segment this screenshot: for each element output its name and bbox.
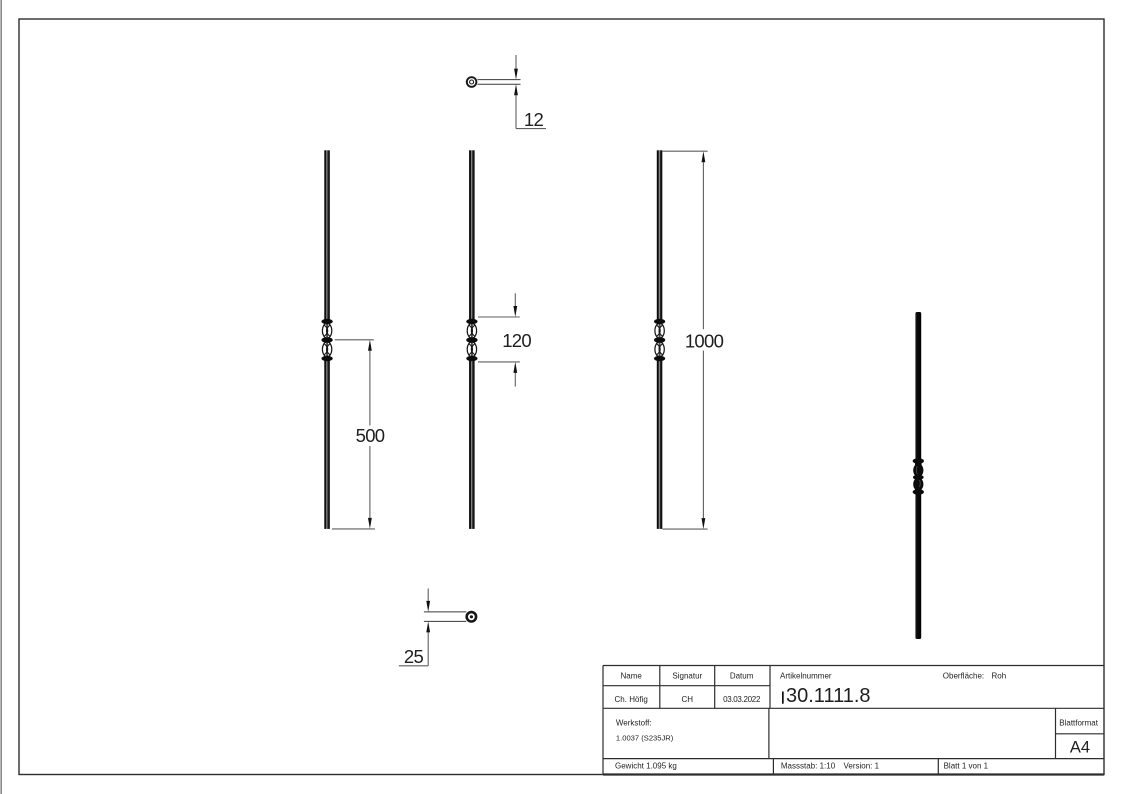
svg-text:500: 500 xyxy=(356,425,385,446)
svg-text:Werkstoff:: Werkstoff: xyxy=(616,719,652,728)
svg-text:03.03.2022: 03.03.2022 xyxy=(723,695,761,704)
svg-text:12: 12 xyxy=(524,109,544,130)
svg-text:Oberfläche:: Oberfläche: xyxy=(943,671,984,680)
svg-text:1.0037 (S235JR): 1.0037 (S235JR) xyxy=(616,734,674,743)
svg-text:Blatt 1 von 1: Blatt 1 von 1 xyxy=(944,762,989,771)
svg-text:CH: CH xyxy=(682,695,694,704)
svg-text:Artikelnummer: Artikelnummer xyxy=(780,671,832,680)
svg-text:25: 25 xyxy=(404,646,424,667)
svg-text:Datum: Datum xyxy=(730,671,754,680)
svg-text:30.1111.8: 30.1111.8 xyxy=(786,685,871,707)
svg-text:Signatur: Signatur xyxy=(672,671,702,680)
svg-text:Gewicht 1.095 kg: Gewicht 1.095 kg xyxy=(615,762,677,771)
svg-text:Version: 1: Version: 1 xyxy=(844,762,880,771)
svg-text:1000: 1000 xyxy=(685,331,724,352)
svg-text:Roh: Roh xyxy=(992,671,1007,680)
svg-text:120: 120 xyxy=(502,330,531,351)
svg-text:A4: A4 xyxy=(1070,739,1090,757)
svg-text:Blattformat: Blattformat xyxy=(1059,719,1098,728)
svg-text:Massstab: 1:10: Massstab: 1:10 xyxy=(781,762,836,771)
svg-text:Ch. Höfig: Ch. Höfig xyxy=(615,695,648,704)
svg-text:Name: Name xyxy=(621,671,643,680)
